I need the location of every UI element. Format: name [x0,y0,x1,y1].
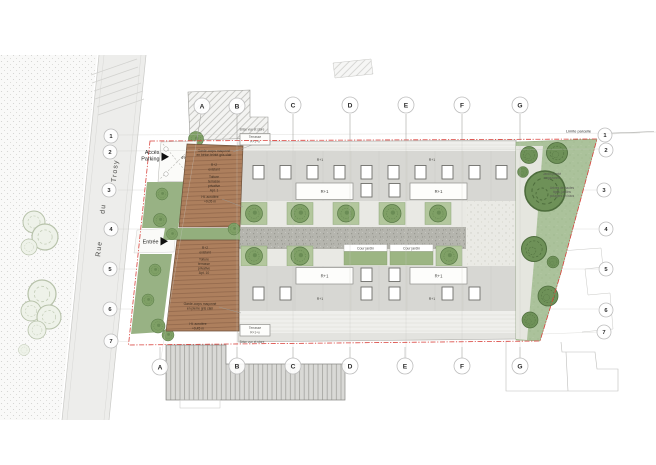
svg-text:B: B [235,103,240,110]
sketch-tree-icon [19,345,30,356]
svg-text:7: 7 [602,330,605,336]
tree-icon [441,248,458,265]
deck-upper-roof-note: privative [208,184,220,188]
roof-level-label: R+1 [429,158,436,162]
svg-text:D: D [348,102,353,109]
tree-icon [246,205,263,222]
grid-letter-top-d: D [342,97,358,140]
main-building: R+1 R+1 R+1 R+1 [238,140,516,342]
access-parking-text: Accès [145,150,160,156]
grid-number-right-2: 2 [599,143,613,157]
grid-letter-bottom-g: G [512,347,528,374]
tree-icon [522,312,538,328]
tree-icon [246,248,263,265]
grid-number-right-3: 3 [597,183,611,197]
grid-number-left-7: 7 [104,334,118,348]
grid-letter-bottom-a: A [152,347,168,375]
deck-lower-guard-note: en pierre gris clair [187,307,214,311]
svg-text:B: B [235,363,240,370]
garden-note-2: potagers en bacs [550,194,575,198]
tree-icon [383,205,401,223]
grid-letter-top-e: E [398,97,414,140]
svg-text:F: F [460,363,464,370]
deck-lower-level: existant [199,251,210,255]
grid-letter-bottom-b: B [229,347,245,374]
deck-lower-roof-note: Apt. 10 [199,271,210,275]
svg-text:2: 2 [108,150,111,156]
neighbor-building-hatched-small [333,59,373,78]
deck-lower-guard-note: Garde-corps maçonné [184,302,217,306]
stone-paving-east [466,201,516,266]
garden-note-1: engazonné [544,176,560,180]
roof-level-label: R+1 [321,273,329,278]
tree-icon [522,237,547,262]
svg-text:C: C [291,363,296,370]
deck-lower-height-note: Ht. acrotère [189,322,206,326]
screen-note: Brise vue et store [240,340,265,344]
tree-icon [228,223,240,235]
tree-icon [149,264,161,276]
svg-text:C: C [291,102,296,109]
grid-number-left-5: 5 [103,262,117,276]
tree-icon [547,143,568,164]
tree-icon [291,247,309,265]
svg-text:A: A [200,103,205,110]
deck-lower-roof-note: terrasse [198,262,210,266]
tree-icon [518,167,529,178]
grid-letter-bottom-f: F [454,347,470,374]
grid-letter-bottom-c: C [285,347,301,374]
deck-upper-height-note: Ht. acrotère [201,195,218,199]
svg-text:F: F [460,102,464,109]
tree-icon [538,286,558,306]
tree-icon [521,147,538,164]
tree-icon [338,205,355,222]
svg-text:2: 2 [604,148,607,154]
site-plan: Trosy du Rue R+1 [0,0,656,465]
grid-numbers-right: 1 2 3 4 5 6 7 [597,128,613,339]
deck-lower-roof-note: privative [198,267,210,271]
terrace-label: Terrasse [249,326,261,330]
site-plan-svg: Trosy du Rue R+1 [0,0,656,465]
deck-lower-roof-note: Toiture [199,258,209,262]
svg-text:7: 7 [109,339,112,345]
svg-text:G: G [517,363,522,370]
tree-icon [291,205,309,223]
entrance-text: Entrée [143,239,159,245]
grid-letter-top-c: C [285,97,301,140]
deck-lower-height-note: +9,45 m [192,327,204,331]
right-garden: Jardin planté engazonné Arbres de hautes… [516,139,597,341]
tree-icon [154,214,167,227]
roof-level-label: R+1 [317,297,324,301]
roof-level-label: R+1 [435,189,443,194]
neighbor-building-bottom-left [166,345,345,408]
svg-text:E: E [403,363,408,370]
skylights-south [253,287,480,300]
courtyard-strip-label: Cour jardin [403,247,420,251]
deck-upper-height-note: +9,05 m [204,200,216,204]
grid-number-right-7: 7 [597,325,611,339]
courtyard-strip-label: Cour jardin [357,247,374,251]
parcel-limit-label: Limite parcelle [566,129,591,134]
grid-number-right-4: 4 [599,222,613,236]
bottom-terrace-strip [238,311,516,333]
roof-level-label: R+1 [435,273,443,278]
grid-number-right-5: 5 [599,262,613,276]
grid-number-left-2: 2 [103,145,117,159]
deck-upper-level: existant [208,168,219,172]
tree-icon [151,319,165,333]
grid-number-left-3: 3 [102,183,116,197]
tree-icon [167,229,178,240]
street-name-word-du: du [100,204,108,215]
access-parking-text: Parking [141,157,159,163]
roof-level-label: R+1 [321,189,329,194]
grid-number-right-6: 6 [599,303,613,317]
grid-letter-bottom-d: D [342,347,358,374]
grid-number-left-1: 1 [104,129,118,143]
deck-upper-guard-note: en béton teinté gris clair [196,153,232,157]
screen-note: Brise vue et store [240,128,265,132]
deck-upper-roof-note: Apt. 1 [210,189,219,193]
svg-text:A: A [158,364,163,371]
terrace-label: R+1+u [250,331,260,335]
tree-icon [142,294,154,306]
deck-lower-level: R+2 [202,246,208,250]
tree-icon [547,256,559,268]
tree-icon [156,188,168,200]
sketch-tree-icon [21,239,37,255]
grid-number-left-4: 4 [104,222,118,236]
deck-upper-level: R+2 [211,163,217,167]
deck-upper-roof-note: Toiture [209,175,219,179]
roof-level-label: R+1 [429,297,436,301]
neighbor-outline-right [560,248,613,332]
deck-upper-roof-note: terrasse [208,180,220,184]
terrace-label: Terrasse [249,135,261,139]
lower-deck: R+2 existant Toiture terrasse privative … [166,240,241,331]
tree-icon [430,205,447,222]
sketch-tree-icon [28,321,46,339]
svg-text:G: G [517,102,522,109]
grid-letter-bottom-e: E [397,347,413,374]
grid-number-left-6: 6 [103,302,117,316]
svg-text:E: E [404,102,409,109]
svg-text:D: D [348,363,353,370]
grid-number-right-1: 1 [598,128,612,142]
roof-level-label: R+1 [317,158,324,162]
